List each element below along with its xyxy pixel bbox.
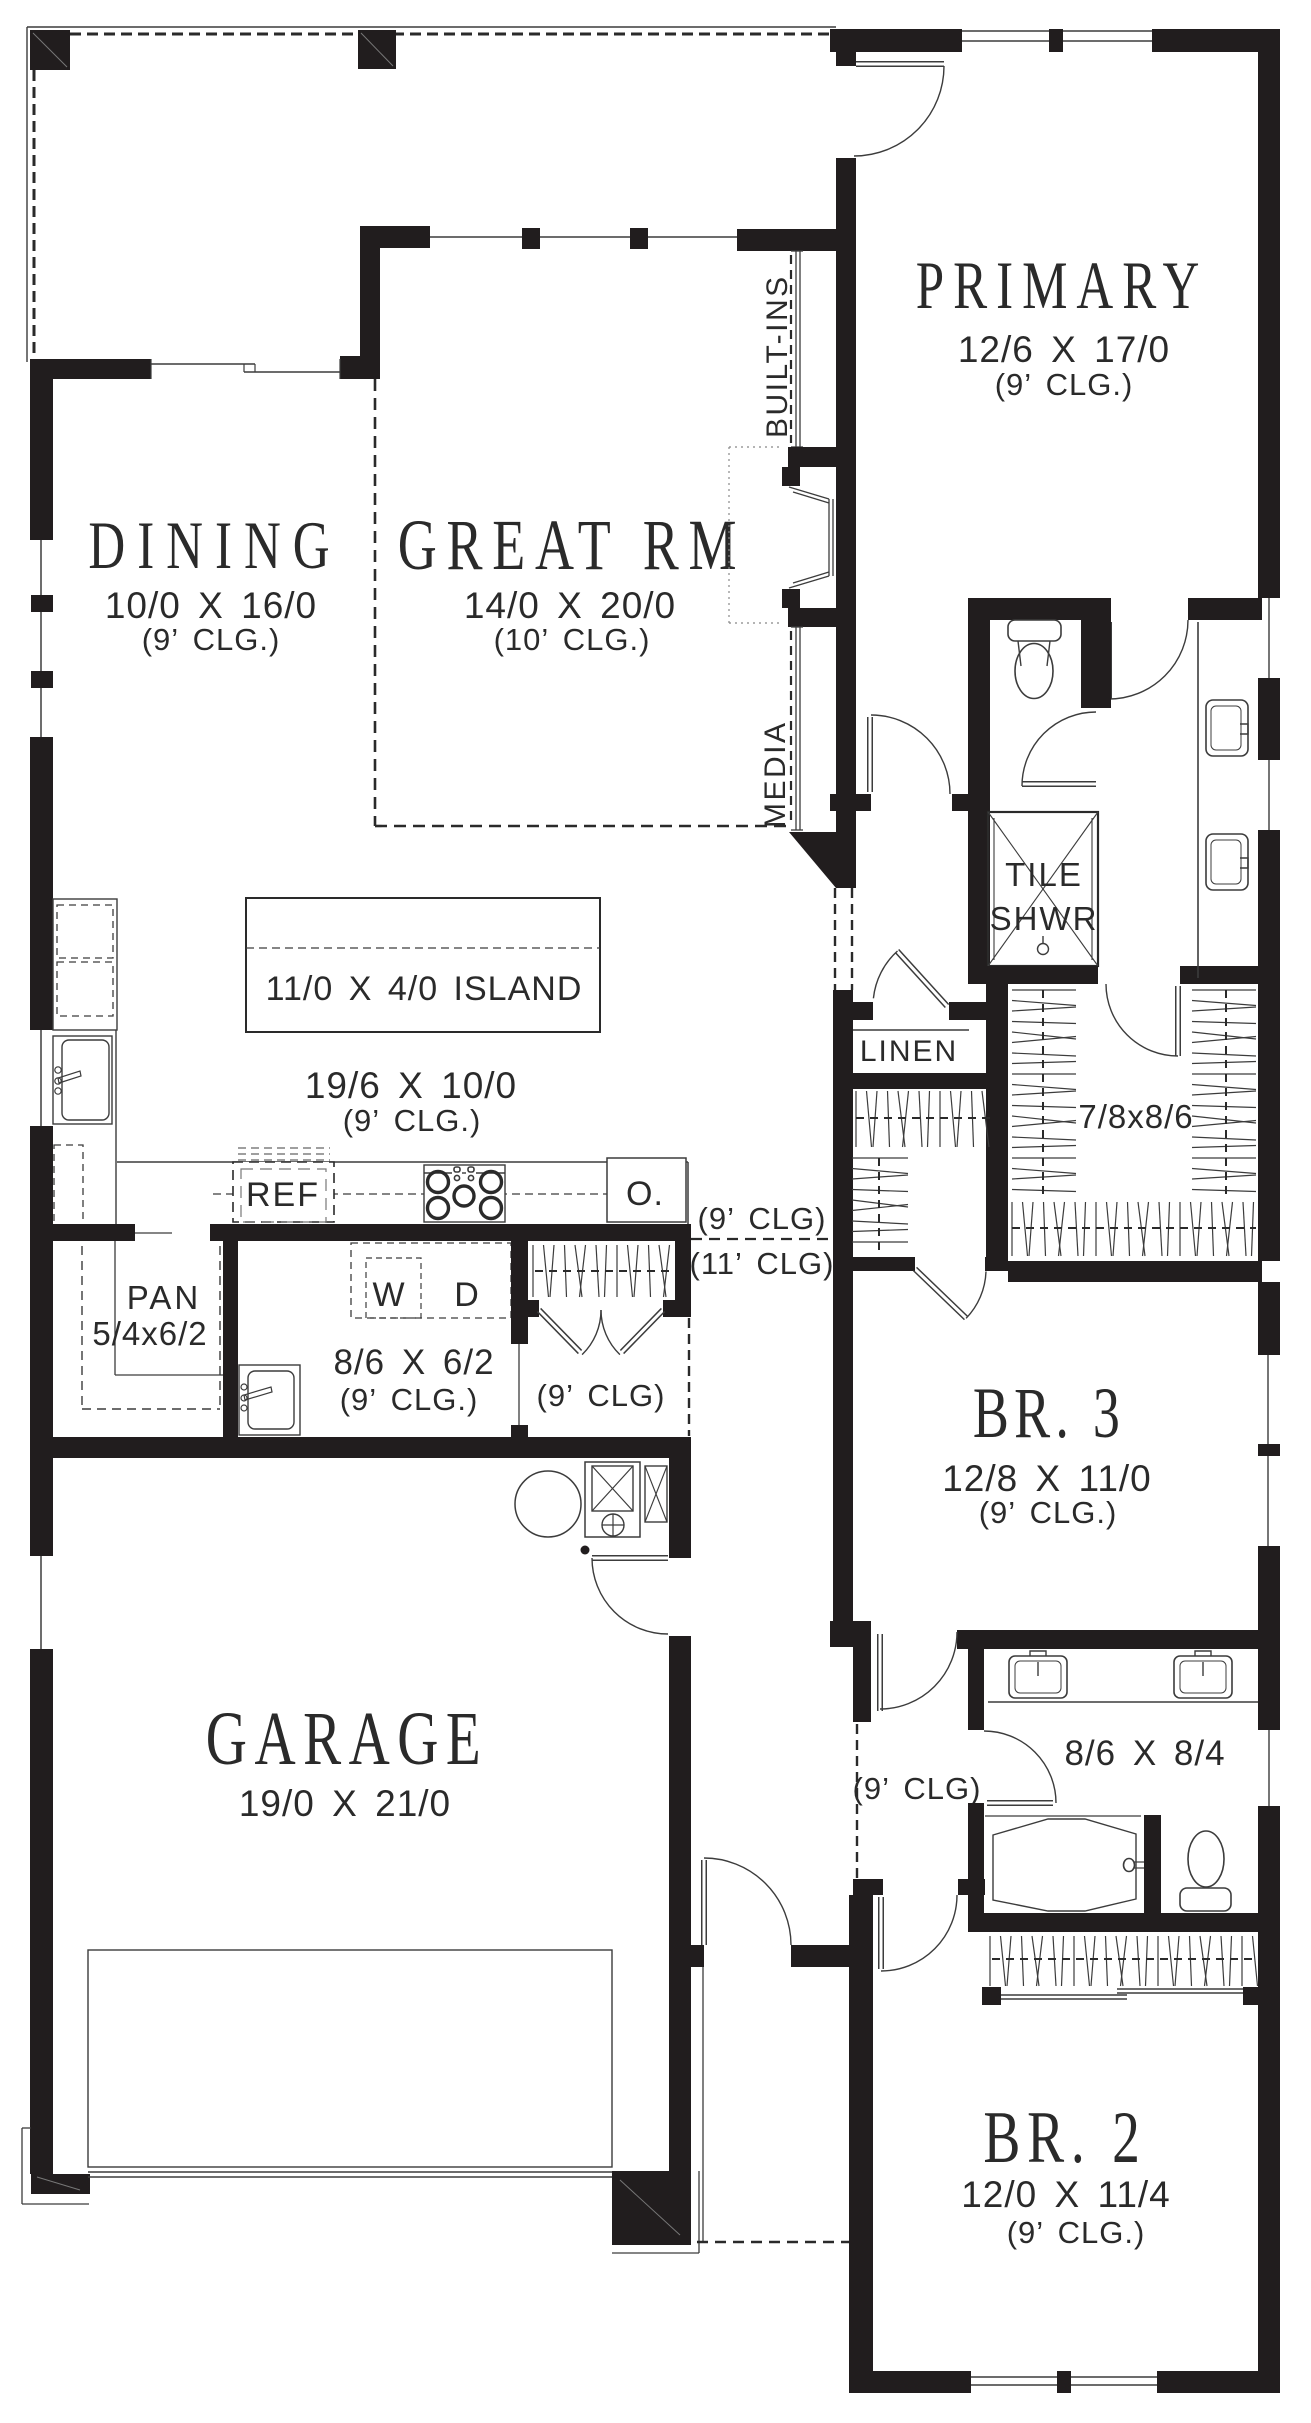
svg-text:8/6 X 8/4: 8/6 X 8/4 [1064, 1734, 1225, 1773]
svg-text:(9’ CLG.): (9’ CLG.) [340, 1382, 479, 1417]
svg-text:12/8 X 11/0: 12/8 X 11/0 [942, 1458, 1152, 1499]
svg-text:11/0 X 4/0 ISLAND: 11/0 X 4/0 ISLAND [266, 970, 583, 1008]
svg-text:BUILT-INS: BUILT-INS [761, 274, 794, 438]
svg-text:(9’ CLG.): (9’ CLG.) [979, 1495, 1118, 1530]
svg-text:(9’ CLG.): (9’ CLG.) [343, 1103, 482, 1138]
svg-text:10/0 X 16/0: 10/0 X 16/0 [105, 585, 317, 626]
svg-text:O.: O. [626, 1175, 664, 1213]
svg-text:8/6 X 6/2: 8/6 X 6/2 [333, 1343, 494, 1382]
svg-text:REF: REF [246, 1176, 320, 1214]
svg-text:TILE: TILE [1005, 856, 1083, 893]
svg-text:GARAGE: GARAGE [206, 1696, 488, 1781]
svg-text:(9’ CLG): (9’ CLG) [698, 1201, 827, 1236]
svg-text:PRIMARY: PRIMARY [916, 248, 1209, 324]
svg-text:14/0 X 20/0: 14/0 X 20/0 [464, 585, 676, 626]
svg-text:12/0 X 11/4: 12/0 X 11/4 [961, 2174, 1171, 2215]
svg-text:DINING: DINING [88, 508, 341, 584]
svg-text:(9’ CLG.): (9’ CLG.) [142, 622, 281, 657]
svg-text:GREAT RM: GREAT RM [398, 505, 746, 585]
svg-text:19/0 X 21/0: 19/0 X 21/0 [239, 1783, 451, 1824]
svg-text:LINEN: LINEN [860, 1035, 958, 1068]
svg-text:W: W [372, 1276, 405, 1314]
svg-text:(9’ CLG.): (9’ CLG.) [1007, 2215, 1146, 2250]
svg-text:(10’ CLG.): (10’ CLG.) [494, 622, 651, 657]
svg-text:BR. 2: BR. 2 [983, 2098, 1146, 2179]
svg-text:D: D [454, 1276, 480, 1314]
svg-text:7/8x8/6: 7/8x8/6 [1078, 1098, 1193, 1135]
svg-text:(11’ CLG): (11’ CLG) [690, 1246, 835, 1281]
svg-text:PAN: PAN [127, 1279, 201, 1316]
svg-text:(9’ CLG.): (9’ CLG.) [995, 367, 1134, 402]
svg-text:BR. 3: BR. 3 [973, 1373, 1125, 1453]
svg-text:SHWR: SHWR [990, 900, 1099, 937]
svg-text:MEDIA: MEDIA [759, 720, 792, 828]
svg-text:5/4x6/2: 5/4x6/2 [92, 1315, 207, 1352]
svg-text:19/6 X 10/0: 19/6 X 10/0 [305, 1065, 517, 1106]
svg-text:(9’ CLG): (9’ CLG) [537, 1378, 666, 1413]
svg-text:12/6 X 17/0: 12/6 X 17/0 [958, 329, 1170, 370]
svg-text:(9’ CLG): (9’ CLG) [853, 1771, 982, 1806]
